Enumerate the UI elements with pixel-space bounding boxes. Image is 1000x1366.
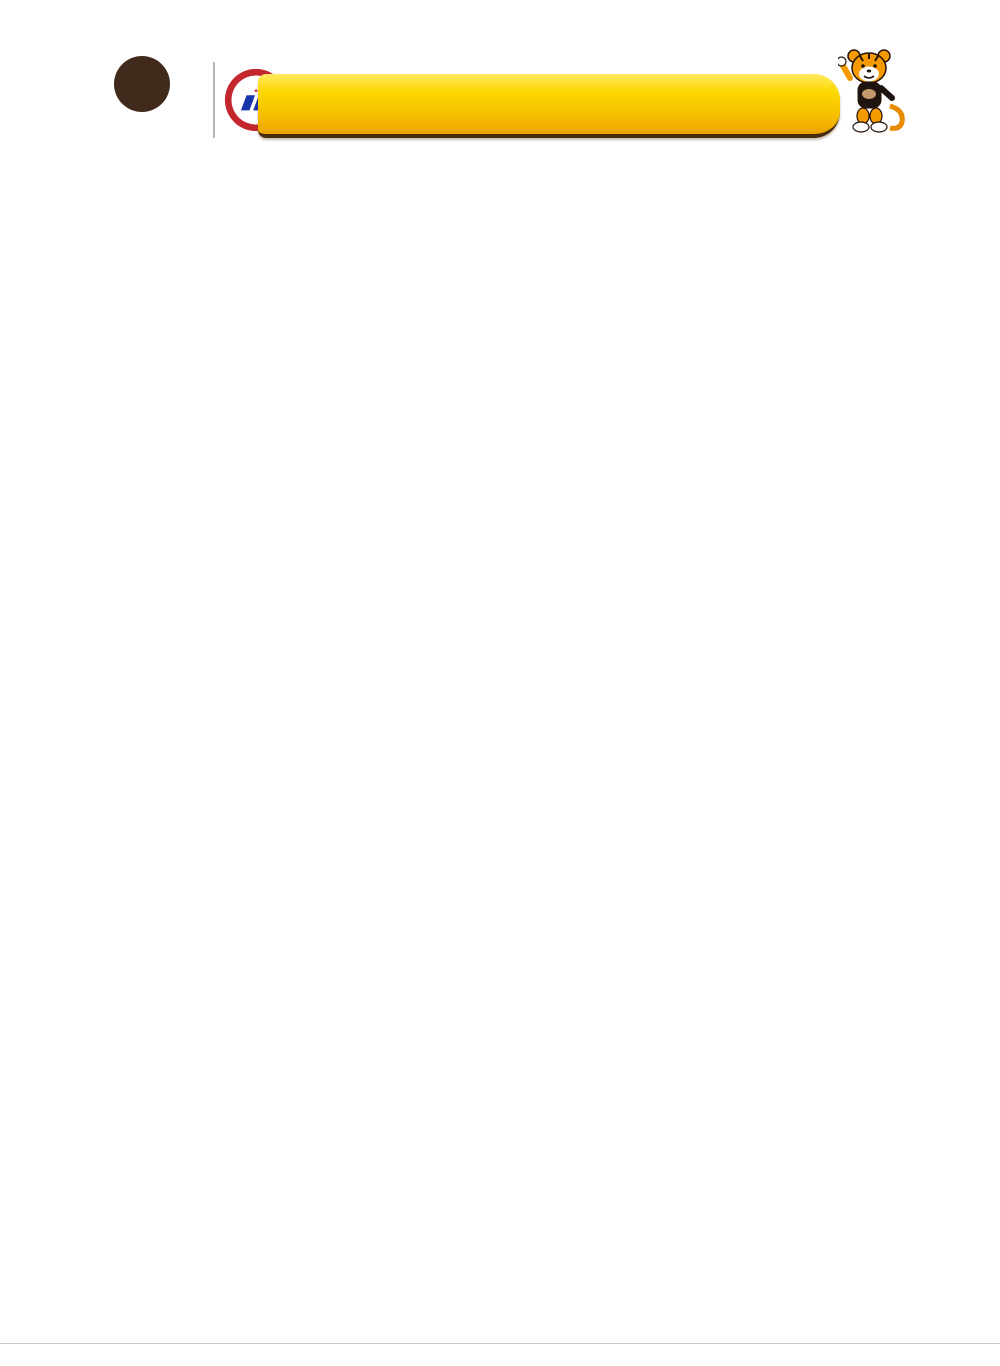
header-divider — [213, 62, 215, 138]
tiger-mascot — [838, 44, 906, 142]
bottom-divider — [0, 1343, 1000, 1344]
wacang-logo-icon — [114, 56, 170, 112]
wacang-logo — [72, 56, 212, 115]
brand-banner — [258, 74, 840, 138]
page-number-block — [58, 1300, 62, 1314]
catalog-page: ★ — [0, 0, 1000, 1366]
